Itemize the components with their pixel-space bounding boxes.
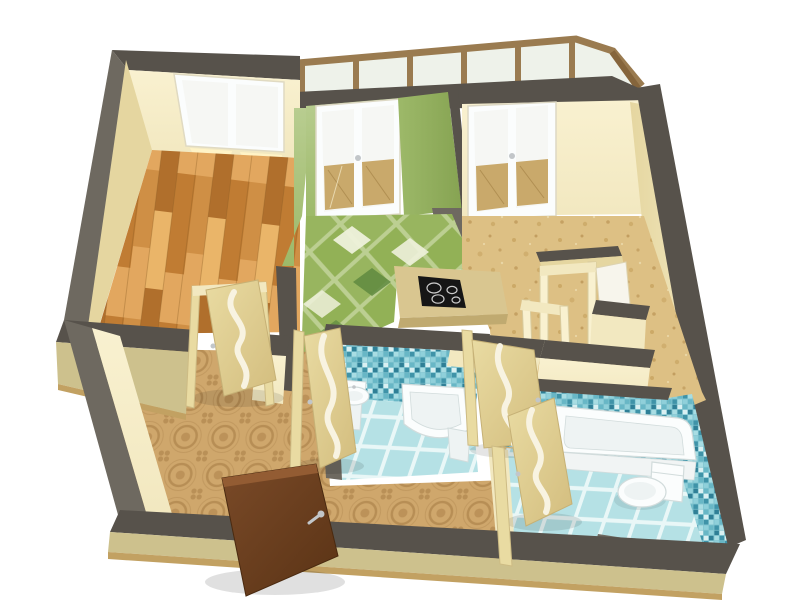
kitchen-counter (394, 266, 508, 328)
floorplan-render: 3D cutaway floor plan render of a one-be… (0, 0, 800, 608)
door-handle (211, 344, 216, 349)
door-handle-2 (509, 153, 515, 159)
faucet (352, 385, 356, 389)
kitchen-balcony-doors (316, 99, 400, 220)
door-handle (355, 155, 361, 161)
apartment-3d-svg: 3D cutaway floor plan render of a one-be… (0, 0, 800, 608)
cooktop (418, 276, 466, 308)
tray-side-panel (448, 428, 470, 462)
door-handle (308, 400, 313, 405)
door-handle (536, 398, 541, 403)
door-handle (516, 472, 521, 477)
window-pane-right (236, 84, 278, 148)
living-balcony-doors (468, 102, 556, 219)
